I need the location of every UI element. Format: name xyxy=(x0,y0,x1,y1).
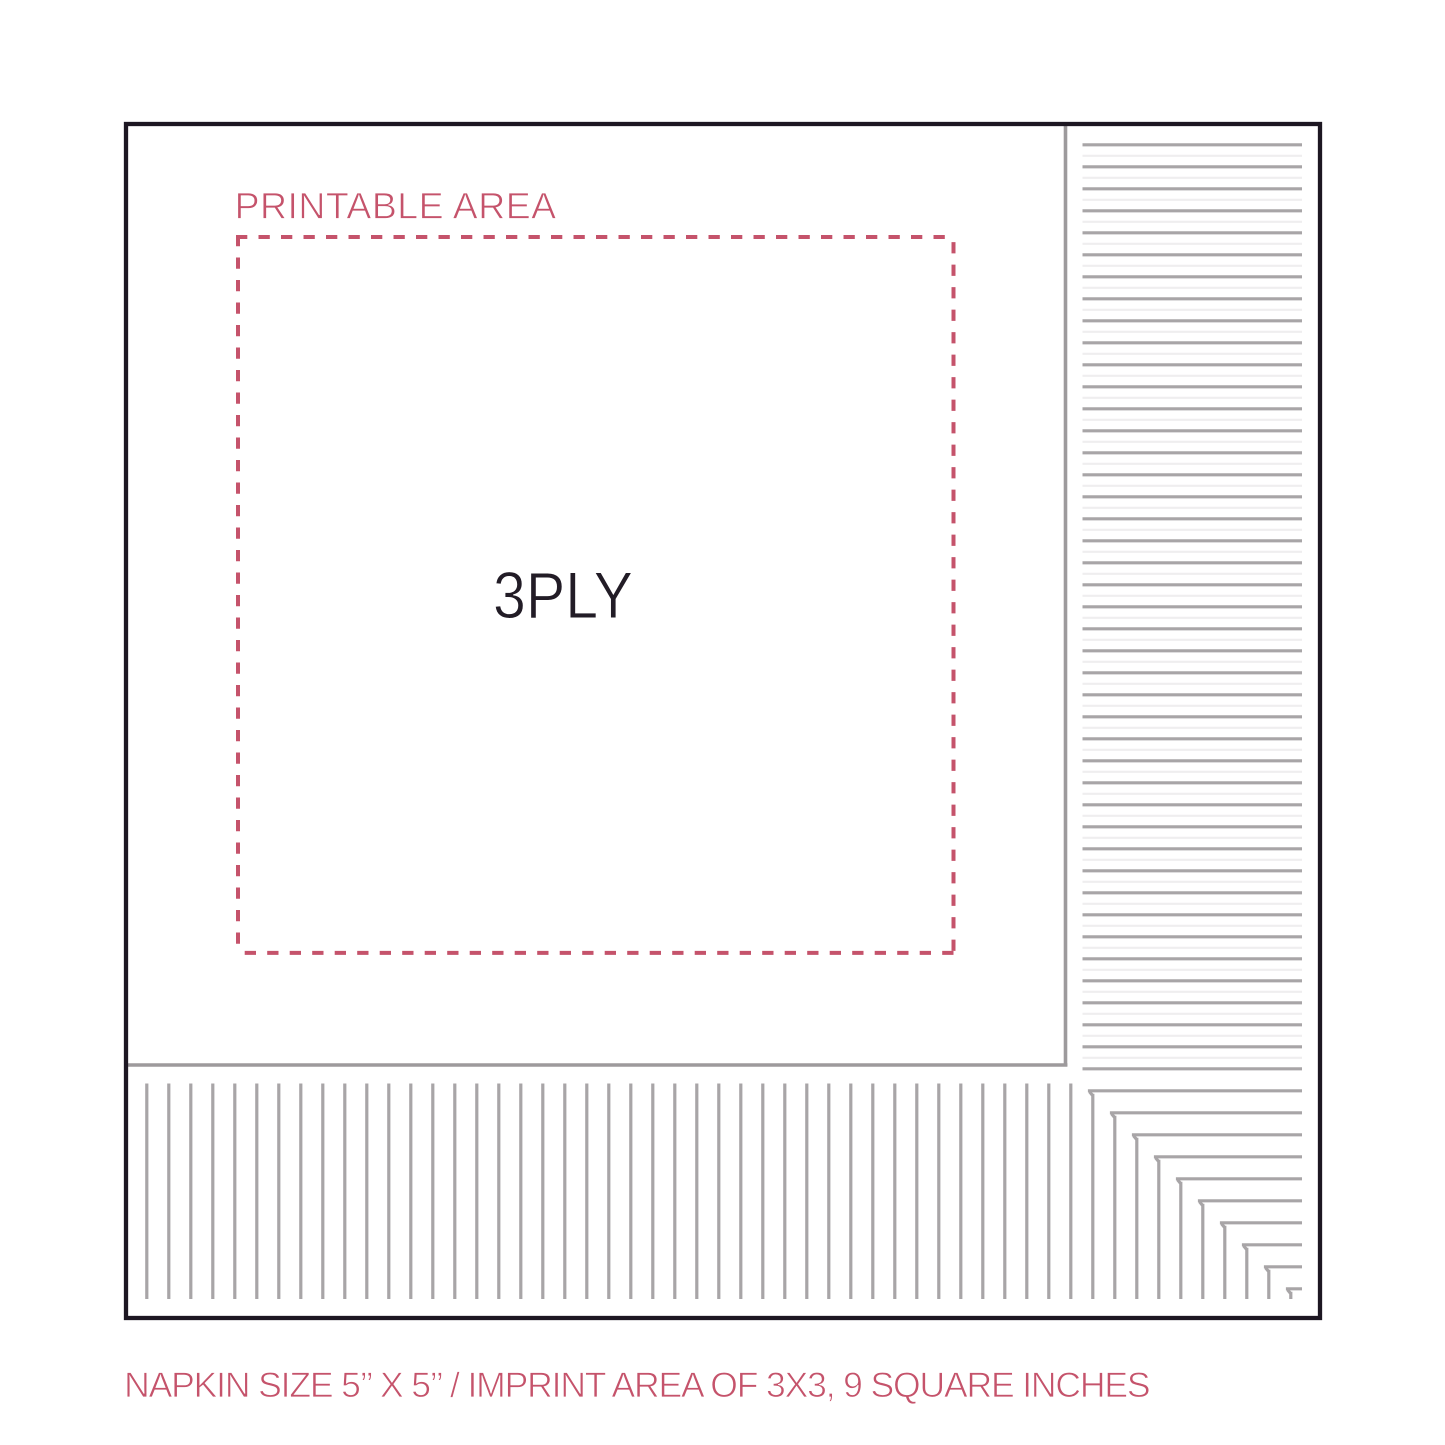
svg-text:PRINTABLE AREA: PRINTABLE AREA xyxy=(235,185,557,227)
svg-text:NAPKIN SIZE 5’’ X 5’’ / IMPRIN: NAPKIN SIZE 5’’ X 5’’ / IMPRINT AREA OF … xyxy=(124,1365,1151,1405)
svg-text:3PLY: 3PLY xyxy=(493,558,633,632)
